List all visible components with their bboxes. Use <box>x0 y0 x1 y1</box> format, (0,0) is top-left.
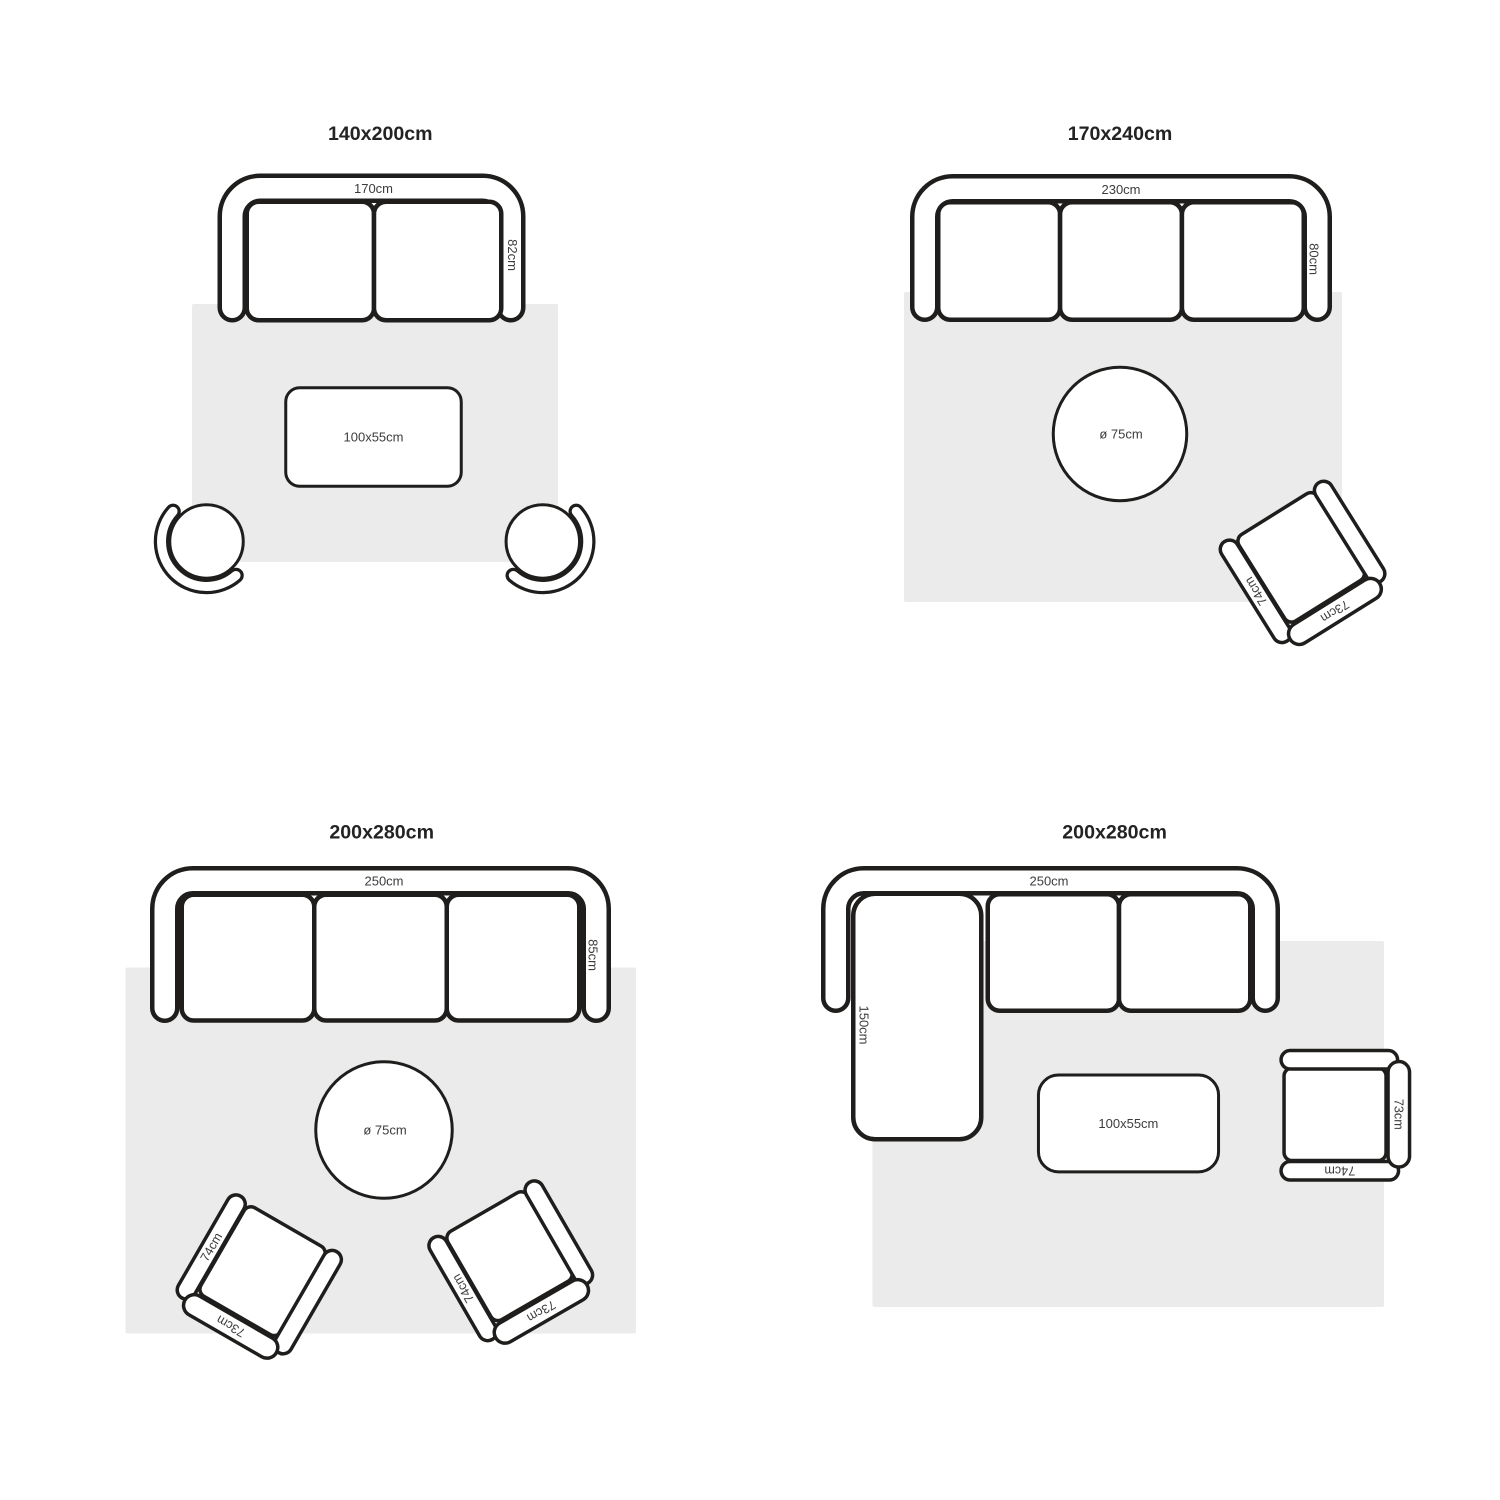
svg-text:ø 75cm: ø 75cm <box>363 1123 406 1138</box>
svg-text:230cm: 230cm <box>1101 182 1140 197</box>
svg-text:80cm: 80cm <box>1307 243 1322 275</box>
svg-text:250cm: 250cm <box>1029 874 1068 889</box>
svg-text:150cm: 150cm <box>857 1005 872 1044</box>
svg-text:200x280cm: 200x280cm <box>329 822 434 844</box>
svg-text:170x240cm: 170x240cm <box>1068 123 1173 145</box>
svg-text:250cm: 250cm <box>364 874 403 889</box>
svg-text:100x55cm: 100x55cm <box>1098 1116 1158 1131</box>
svg-text:140x200cm: 140x200cm <box>328 123 433 145</box>
svg-text:82cm: 82cm <box>505 239 520 271</box>
svg-text:73cm: 73cm <box>1392 1099 1406 1130</box>
svg-text:ø 75cm: ø 75cm <box>1099 427 1142 442</box>
svg-text:170cm: 170cm <box>354 181 393 196</box>
svg-text:74cm: 74cm <box>1324 1164 1355 1178</box>
svg-text:100x55cm: 100x55cm <box>344 430 404 445</box>
svg-text:200x280cm: 200x280cm <box>1062 822 1167 844</box>
svg-text:85cm: 85cm <box>586 939 601 971</box>
